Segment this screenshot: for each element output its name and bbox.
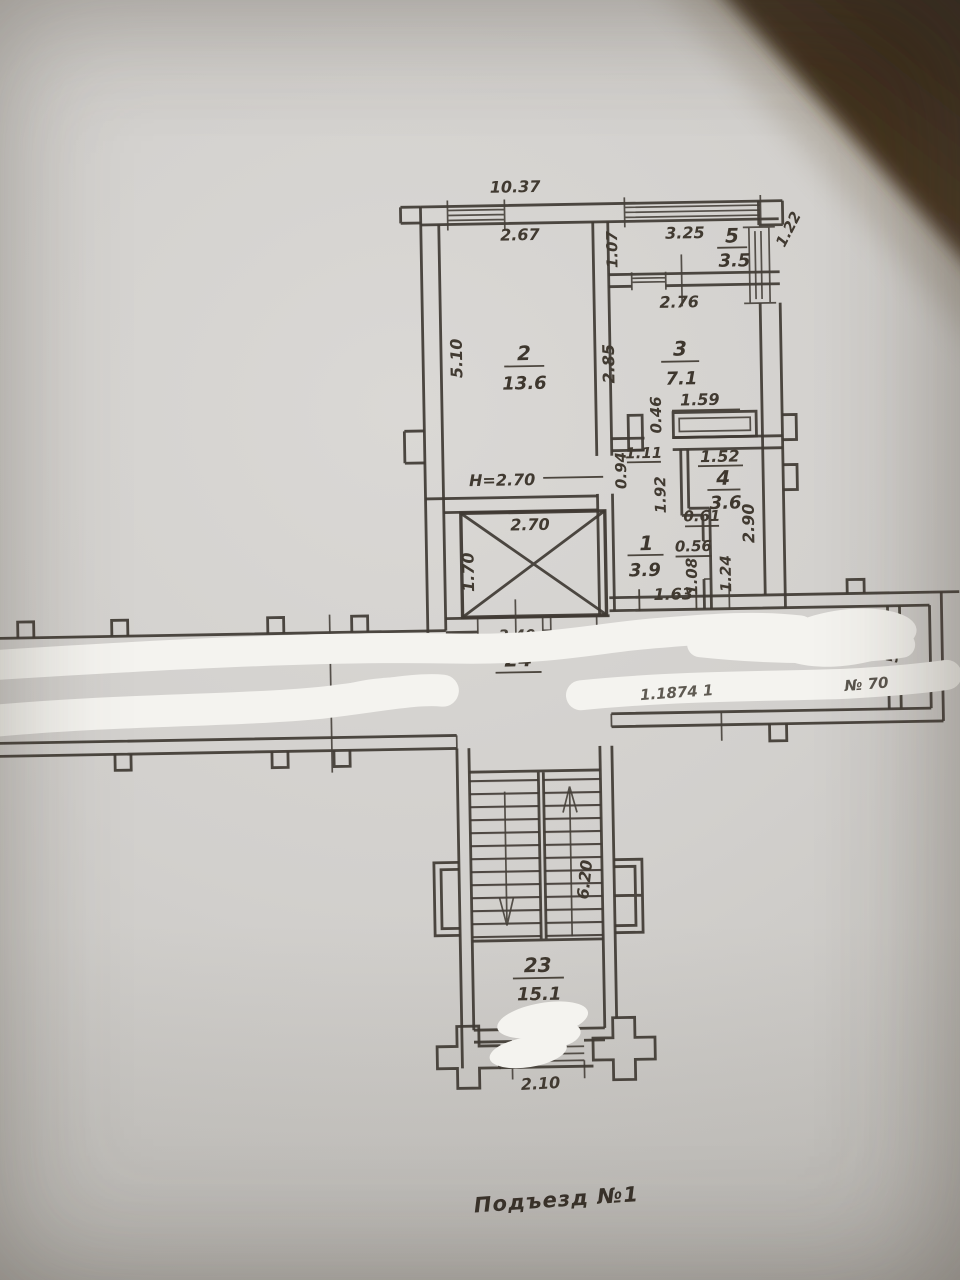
dim-niche-width: 1.59 bbox=[680, 390, 720, 410]
label-ceiling-height: H=2.70 bbox=[469, 470, 536, 490]
dim-window-room2: 2.67 bbox=[500, 225, 541, 245]
room3-number: 3 bbox=[673, 336, 687, 360]
duct-left bbox=[434, 862, 460, 935]
room4-area: 3.6 bbox=[710, 492, 742, 514]
dim-lift-depth: 1.70 bbox=[458, 552, 478, 592]
dim-overall-width: 10.37 bbox=[490, 177, 542, 197]
duct-right bbox=[614, 859, 643, 932]
dim-room4-width: 1.52 bbox=[700, 446, 740, 466]
pilaster-cross-right bbox=[593, 1017, 656, 1080]
window-room2 bbox=[447, 200, 505, 231]
dim-lift-width: 2.70 bbox=[510, 515, 550, 535]
room-label-3: 3 7.1 bbox=[665, 336, 698, 390]
dim-window-room5: 3.25 bbox=[665, 223, 705, 243]
entrance-label: Подъезд №1 bbox=[473, 1182, 640, 1217]
dim-room4-height: 1.92 bbox=[651, 476, 670, 513]
room-label-2: 2 13.6 bbox=[502, 341, 547, 395]
plan-group: 10.37 2.67 3.25 1.22 1.07 2.76 5.10 2.85… bbox=[0, 170, 960, 1226]
floorplan-photo: 10.37 2.67 3.25 1.22 1.07 2.76 5.10 2.85… bbox=[0, 0, 960, 1280]
dim-room3-height: 2.85 bbox=[599, 344, 619, 384]
dim-side-window-room5: 1.22 bbox=[772, 209, 805, 250]
dim-hall-lower-right: 1.24 bbox=[717, 555, 736, 592]
room5-number: 5 bbox=[725, 223, 739, 247]
room4-number: 4 bbox=[715, 466, 730, 490]
dim-hall-mid-width: 0.56 bbox=[675, 537, 712, 556]
room23-number: 23 bbox=[524, 953, 552, 977]
stair-flight-right bbox=[543, 770, 603, 940]
dim-niche-depth: 0.46 bbox=[647, 396, 666, 433]
room1-number: 1 bbox=[639, 531, 653, 555]
dim-room3-top: 2.76 bbox=[659, 292, 699, 312]
dim-stair-window: 2.10 bbox=[520, 1073, 560, 1094]
room2-area: 13.6 bbox=[502, 373, 547, 395]
floorplan-drawing: 10.37 2.67 3.25 1.22 1.07 2.76 5.10 2.85… bbox=[0, 0, 960, 1280]
dim-hall-top-width: 1.11 bbox=[625, 444, 662, 463]
dim-hall-door-width: 1.63 bbox=[653, 584, 693, 604]
dim-room2-height: 5.10 bbox=[447, 338, 467, 378]
room3-area: 7.1 bbox=[665, 368, 697, 390]
dim-room5-depth: 1.07 bbox=[603, 230, 622, 268]
room1-area: 3.9 bbox=[629, 560, 661, 582]
room5-area: 3.5 bbox=[718, 250, 750, 272]
dim-hall-left-depth: 0.94 bbox=[612, 452, 631, 489]
room2-number: 2 bbox=[517, 341, 531, 365]
